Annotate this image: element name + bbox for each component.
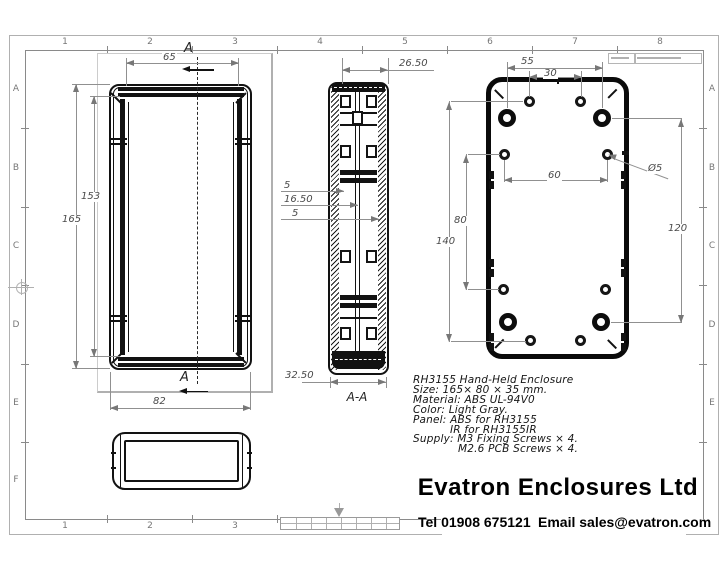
extension-line bbox=[451, 101, 523, 102]
extension-line bbox=[612, 118, 682, 119]
dim-text-overall-height: 165 bbox=[61, 215, 82, 225]
border-line bbox=[9, 35, 10, 534]
front-view-right-wall-line bbox=[233, 102, 234, 352]
dim-arrow-icon bbox=[73, 361, 79, 369]
scale-bar bbox=[280, 517, 400, 530]
dim-text-120: 120 bbox=[667, 224, 688, 234]
extension-line bbox=[468, 154, 500, 155]
frame-tick bbox=[699, 364, 707, 365]
fixing-hole bbox=[499, 313, 517, 331]
edge-notch bbox=[622, 151, 629, 155]
extension-line bbox=[451, 341, 526, 342]
end-view-cap-line bbox=[120, 435, 121, 487]
cap-dotted-line bbox=[335, 359, 381, 360]
pcb-boss bbox=[340, 95, 351, 108]
pcb-boss bbox=[366, 145, 377, 158]
frame-tick bbox=[699, 442, 707, 443]
pcb-slot-bar bbox=[340, 295, 377, 300]
wall-clip-mark bbox=[489, 171, 494, 179]
dim-arrow-icon bbox=[91, 96, 97, 104]
dimension-line bbox=[449, 101, 450, 342]
frame-tick bbox=[532, 46, 533, 54]
rib-line bbox=[340, 317, 377, 319]
grid-label-left: E bbox=[9, 398, 23, 408]
dim-text-inner-height: 153 bbox=[80, 192, 101, 202]
center-mark-icon bbox=[334, 508, 344, 517]
dim-arrow-icon bbox=[350, 202, 358, 208]
dim-text-30: 30 bbox=[543, 69, 558, 79]
drawing-sheet: 1 2 3 4 5 6 7 8 1 2 3 A B C D E F A B C … bbox=[0, 0, 728, 573]
end-view-inner bbox=[124, 440, 239, 482]
dim-text-80: 80 bbox=[453, 216, 468, 226]
section-top-cap bbox=[332, 84, 385, 92]
leader-line bbox=[281, 205, 358, 206]
dim-arrow-icon bbox=[595, 65, 603, 71]
section-arrow-line bbox=[190, 69, 214, 71]
notes-block: RH3155 Hand-Held Enclosure Size: 165× 80… bbox=[413, 376, 603, 455]
wall-clip-mark bbox=[621, 171, 626, 179]
dim-arrow-icon bbox=[600, 177, 608, 183]
dimension-line bbox=[302, 382, 387, 383]
screw-hole bbox=[600, 284, 611, 295]
pcb-slot-bar bbox=[340, 170, 377, 175]
wall-clip-mark bbox=[235, 315, 252, 317]
screw-hole bbox=[499, 149, 510, 160]
grid-label-top: 3 bbox=[227, 37, 243, 47]
grid-label-left: D bbox=[9, 320, 23, 330]
section-wall-hatch bbox=[378, 87, 386, 370]
grid-label-right: A bbox=[705, 84, 719, 94]
center-line bbox=[197, 57, 198, 384]
section-center-rib bbox=[355, 92, 360, 351]
dimension-line bbox=[76, 84, 77, 369]
grid-label-left: A bbox=[9, 84, 23, 94]
section-view-label: A-A bbox=[341, 391, 373, 404]
wall-clip-mark bbox=[489, 333, 494, 341]
wall-clip-mark bbox=[235, 143, 252, 145]
grid-label-bottom: 3 bbox=[227, 521, 243, 531]
dim-arrow-icon bbox=[126, 60, 134, 66]
frame-tick bbox=[21, 128, 29, 129]
section-arrow-icon bbox=[179, 388, 187, 394]
wall-clip-mark bbox=[621, 181, 626, 189]
company-name: Evatron Enclosures Ltd bbox=[412, 474, 704, 502]
dim-text-140: 140 bbox=[435, 237, 456, 247]
grid-label-top: 8 bbox=[652, 37, 668, 47]
frame-tick bbox=[699, 285, 707, 286]
leader-line bbox=[281, 219, 379, 220]
wall-clip-mark bbox=[110, 320, 127, 322]
dim-arrow-icon bbox=[574, 74, 582, 80]
dim-arrow-icon bbox=[380, 67, 388, 73]
screw-hole bbox=[575, 96, 586, 107]
wall-clip-mark bbox=[110, 138, 127, 140]
edge-tick bbox=[247, 452, 252, 454]
frame-tick bbox=[277, 515, 278, 523]
frame-line bbox=[25, 50, 704, 51]
dim-text-55: 55 bbox=[520, 57, 535, 67]
edge-tick bbox=[111, 467, 116, 469]
dim-text-lid-depth: 26.50 bbox=[398, 59, 429, 69]
frame-tick bbox=[107, 515, 108, 523]
grid-label-bottom: 1 bbox=[57, 521, 73, 531]
fixing-hole bbox=[498, 109, 516, 127]
extension-line bbox=[611, 322, 682, 323]
border-line bbox=[9, 534, 446, 535]
fixing-hole bbox=[593, 109, 611, 127]
grid-label-top: 5 bbox=[397, 37, 413, 47]
border-line bbox=[686, 534, 719, 535]
section-arrow-icon bbox=[182, 66, 190, 72]
company-tel: Tel 01908 675121 bbox=[418, 514, 531, 530]
screw-hole bbox=[498, 284, 509, 295]
section-label-bottom: A bbox=[180, 371, 189, 384]
dim-text-overall-width: 82 bbox=[152, 397, 167, 407]
frame-tick bbox=[21, 364, 29, 365]
dim-text-slot-a: 5 bbox=[283, 181, 291, 191]
pcb-boss bbox=[366, 250, 377, 263]
dimension-line bbox=[94, 96, 95, 357]
front-view-left-wall-line bbox=[128, 102, 129, 352]
dimension-line bbox=[342, 70, 434, 71]
frame-tick bbox=[277, 46, 278, 54]
pcb-boss bbox=[340, 145, 351, 158]
pcb-boss bbox=[366, 95, 377, 108]
note-line: M2.6 PCB Screws × 4. bbox=[413, 445, 603, 455]
screw-hole bbox=[524, 96, 535, 107]
grid-label-bottom: 2 bbox=[142, 521, 158, 531]
dim-arrow-icon bbox=[504, 177, 512, 183]
frame-tick bbox=[21, 207, 29, 208]
grid-label-right: E bbox=[705, 398, 719, 408]
pcb-slot-bar bbox=[340, 178, 377, 183]
dim-arrow-icon bbox=[678, 315, 684, 323]
dim-arrow-icon bbox=[378, 379, 386, 385]
grid-label-top: 2 bbox=[142, 37, 158, 47]
edge-tick bbox=[247, 467, 252, 469]
leader-line bbox=[281, 191, 344, 192]
dim-arrow-icon bbox=[446, 102, 452, 110]
dim-text-slot-b: 5 bbox=[291, 209, 299, 219]
scale-bar-midline bbox=[281, 523, 399, 524]
dimension-line bbox=[681, 118, 682, 323]
dimension-line bbox=[110, 408, 251, 409]
grid-label-top: 7 bbox=[567, 37, 583, 47]
pcb-boss bbox=[366, 327, 377, 340]
pcb-slot-bar bbox=[340, 303, 377, 308]
dim-arrow-icon bbox=[73, 84, 79, 92]
frame-tick bbox=[699, 128, 707, 129]
grid-label-left: B bbox=[9, 163, 23, 173]
dim-text-base-depth: 32.50 bbox=[284, 371, 315, 381]
frame-tick bbox=[192, 515, 193, 523]
dim-arrow-icon bbox=[678, 119, 684, 127]
dimension-line bbox=[126, 63, 239, 64]
dim-text-slot-center: 16.50 bbox=[283, 195, 314, 205]
screw-hole bbox=[525, 335, 536, 346]
frame-tick bbox=[21, 442, 29, 443]
dim-arrow-icon bbox=[446, 334, 452, 342]
dim-arrow-icon bbox=[110, 405, 118, 411]
dim-arrow-icon bbox=[463, 282, 469, 290]
grid-label-top: 6 bbox=[482, 37, 498, 47]
section-arrow-line bbox=[186, 391, 208, 392]
wall-clip-mark bbox=[489, 269, 494, 277]
end-view-cap-line bbox=[242, 435, 243, 487]
wall-clip-mark bbox=[621, 269, 626, 277]
extension-line bbox=[468, 289, 499, 290]
wall-clip-mark bbox=[489, 343, 494, 351]
dim-arrow-icon bbox=[91, 349, 97, 357]
dim-arrow-icon bbox=[529, 74, 537, 80]
wall-clip-mark bbox=[235, 138, 252, 140]
section-label-top: A bbox=[184, 42, 193, 55]
centering-mark-line bbox=[21, 279, 22, 295]
wall-clip-mark bbox=[235, 320, 252, 322]
grid-label-right: B bbox=[705, 163, 719, 173]
dim-arrow-icon bbox=[371, 216, 379, 222]
wall-clip-mark bbox=[489, 259, 494, 267]
centering-mark-icon bbox=[16, 282, 28, 294]
company-email: Email sales@evatron.com bbox=[538, 514, 711, 530]
frame-tick bbox=[699, 207, 707, 208]
dim-text-hole-dia: Ø5 bbox=[647, 164, 663, 174]
dim-arrow-icon bbox=[342, 67, 350, 73]
extension-line bbox=[388, 58, 389, 84]
border-line bbox=[9, 35, 719, 36]
front-view-top-cap bbox=[118, 87, 244, 97]
wall-clip-mark bbox=[621, 259, 626, 267]
wall-clip-mark bbox=[621, 333, 626, 341]
wall-clip-mark bbox=[110, 315, 127, 317]
dim-arrow-icon bbox=[507, 65, 515, 71]
dim-text-lid-width: 65 bbox=[162, 53, 177, 63]
section-wall-hatch bbox=[331, 87, 339, 370]
cap-split-line bbox=[118, 361, 244, 363]
cap-dotted-line bbox=[334, 87, 382, 88]
pcb-boss bbox=[340, 327, 351, 340]
dim-arrow-icon bbox=[336, 188, 344, 194]
section-bottom-cap bbox=[332, 351, 385, 369]
grid-label-right: D bbox=[705, 320, 719, 330]
wall-clip-mark bbox=[489, 181, 494, 189]
dim-arrow-icon bbox=[231, 60, 239, 66]
grid-label-left: C bbox=[9, 241, 23, 251]
grid-label-top: 4 bbox=[312, 37, 328, 47]
revision-box-microtext bbox=[611, 57, 629, 59]
wall-clip-mark bbox=[110, 143, 127, 145]
front-view-inner-outline bbox=[113, 87, 248, 367]
revision-box-microtext bbox=[637, 57, 681, 59]
pcb-boss bbox=[340, 250, 351, 263]
grid-label-top: 1 bbox=[57, 37, 73, 47]
frame-tick bbox=[447, 46, 448, 54]
grid-label-right: C bbox=[705, 241, 719, 251]
screw-hole bbox=[575, 335, 586, 346]
front-view-bottom-cap bbox=[118, 357, 244, 367]
fixing-hole bbox=[592, 313, 610, 331]
grid-label-left: F bbox=[9, 475, 23, 485]
dim-arrow-icon bbox=[330, 379, 338, 385]
dim-arrow-icon bbox=[243, 405, 251, 411]
edge-tick bbox=[111, 452, 116, 454]
cap-split-line bbox=[118, 91, 244, 93]
rib-block bbox=[352, 111, 363, 125]
frame-tick bbox=[362, 46, 363, 54]
dim-arrow-icon bbox=[463, 155, 469, 163]
wall-clip-mark bbox=[621, 343, 626, 351]
border-line bbox=[718, 35, 719, 535]
dim-text-60: 60 bbox=[547, 171, 562, 181]
